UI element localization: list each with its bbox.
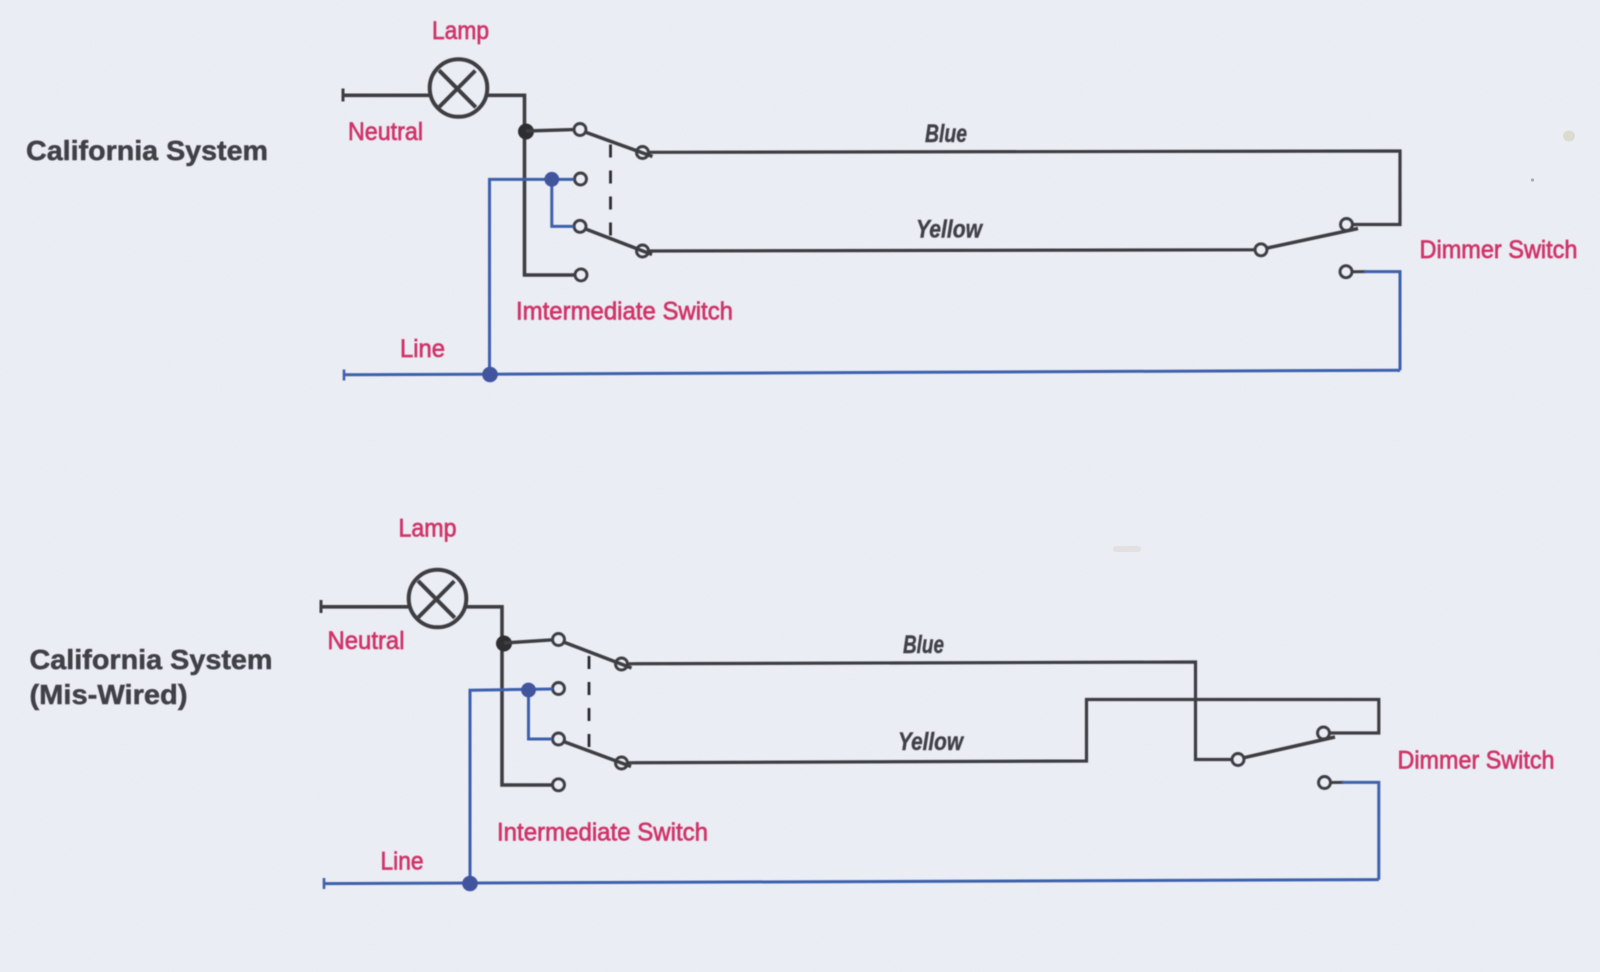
svg-text:Imtermediate Switch: Imtermediate Switch: [516, 298, 733, 326]
svg-text:Yellow: Yellow: [916, 216, 983, 244]
svg-text:Blue: Blue: [903, 631, 944, 659]
svg-text:Lamp: Lamp: [399, 515, 457, 543]
svg-text:Line: Line: [381, 848, 424, 876]
svg-text:Blue: Blue: [925, 120, 967, 148]
svg-text:Lamp: Lamp: [432, 17, 489, 45]
svg-text:California System: California System: [26, 135, 268, 166]
svg-text:California System: California System: [30, 644, 273, 675]
svg-text:(Mis-Wired): (Mis-Wired): [30, 679, 188, 710]
svg-text:Dimmer Switch: Dimmer Switch: [1398, 747, 1555, 775]
svg-text:Yellow: Yellow: [898, 728, 964, 756]
svg-text:Neutral: Neutral: [348, 118, 423, 146]
svg-text:Neutral: Neutral: [328, 627, 405, 655]
svg-text:Intermediate Switch: Intermediate Switch: [497, 819, 708, 847]
svg-text:Line: Line: [400, 335, 445, 363]
svg-text:Dimmer Switch: Dimmer Switch: [1420, 236, 1578, 264]
